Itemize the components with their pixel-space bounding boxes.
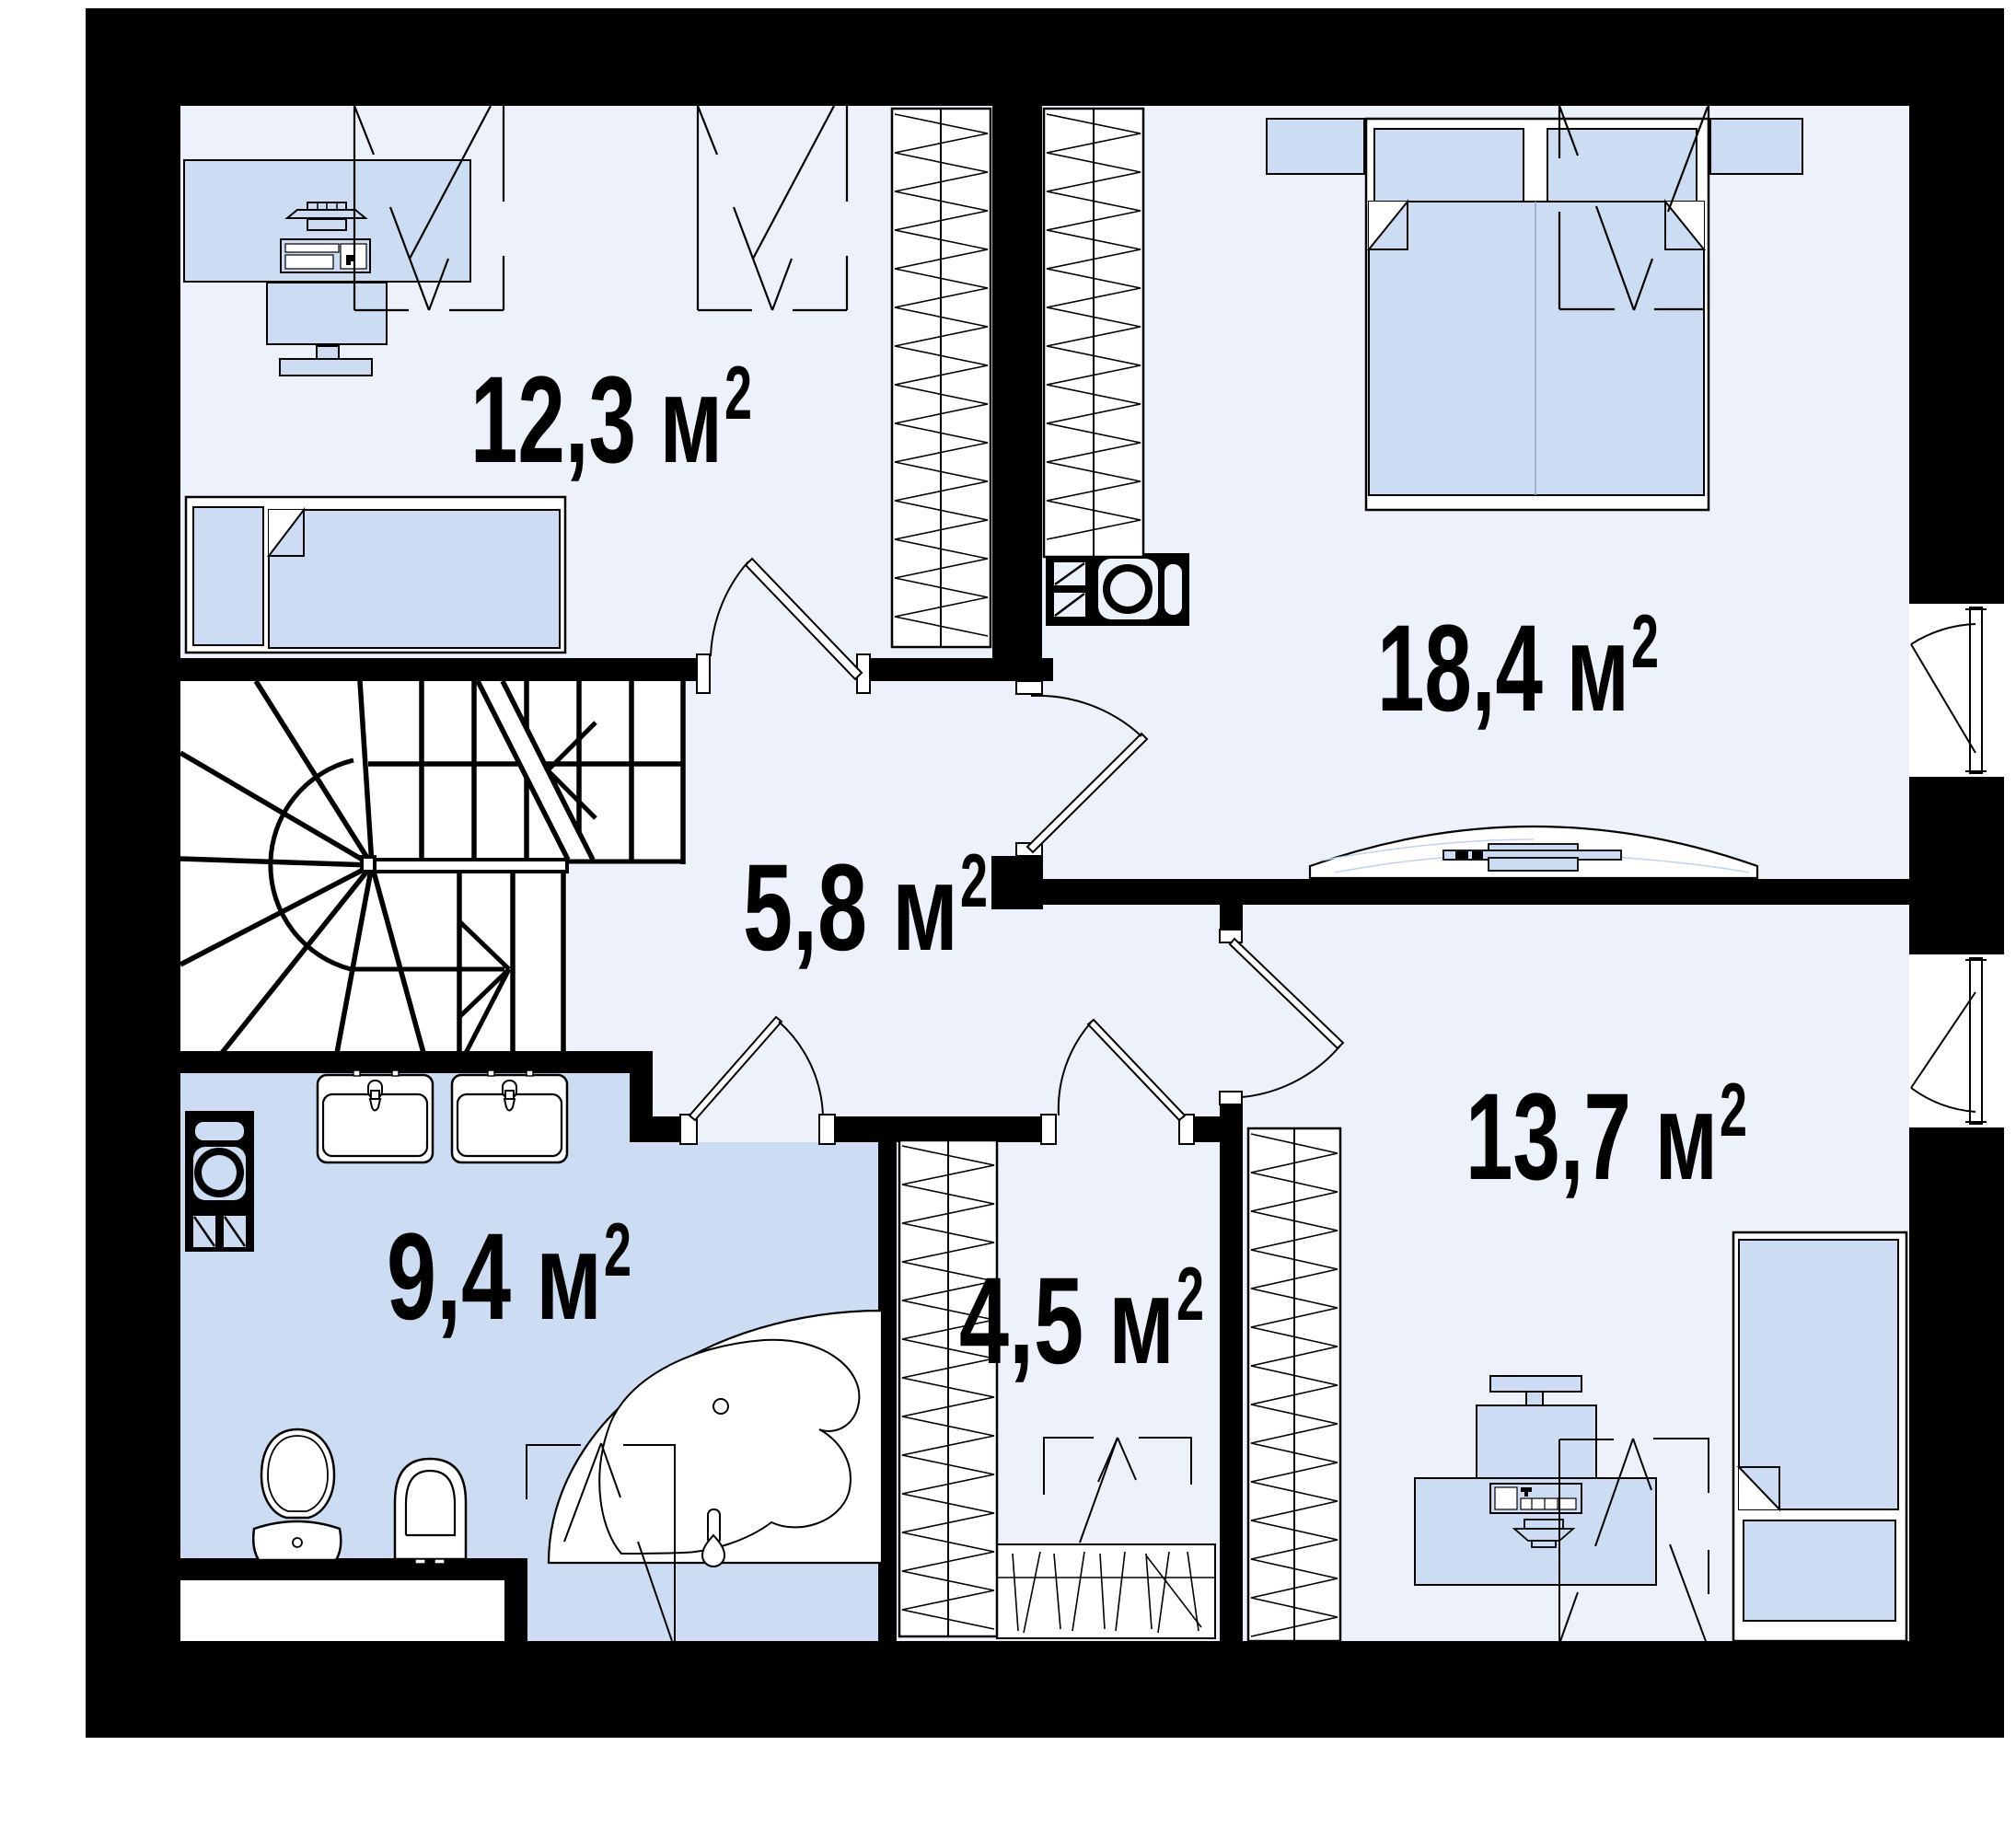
- svg-text:2: 2: [1720, 1067, 1747, 1152]
- svg-text:2: 2: [1631, 598, 1659, 684]
- svg-text:12,3 м: 12,3 м: [470, 352, 723, 489]
- svg-text:2: 2: [1176, 1251, 1204, 1336]
- svg-text:2: 2: [960, 838, 988, 923]
- svg-text:2: 2: [724, 350, 752, 435]
- svg-text:9,4 м: 9,4 м: [387, 1208, 602, 1346]
- svg-text:2: 2: [604, 1207, 631, 1292]
- svg-text:5,8 м: 5,8 м: [743, 839, 958, 977]
- svg-text:18,4 м: 18,4 м: [1377, 600, 1629, 737]
- svg-text:13,7 м: 13,7 м: [1466, 1069, 1718, 1206]
- svg-text:4,5 м: 4,5 м: [959, 1253, 1175, 1390]
